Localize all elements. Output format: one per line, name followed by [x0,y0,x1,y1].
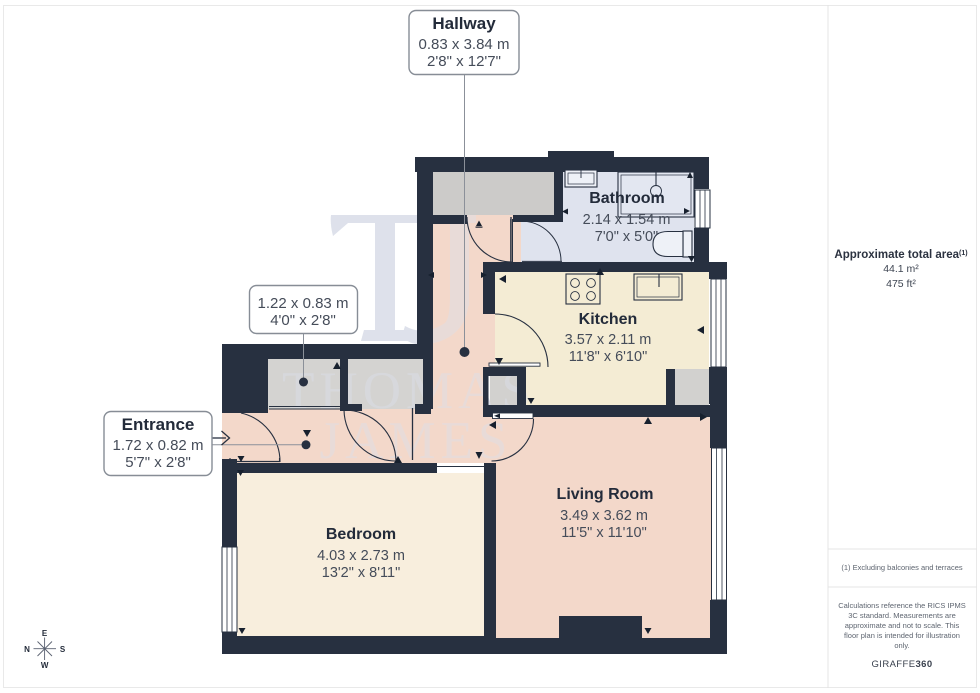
svg-text:11'5" x 11'10": 11'5" x 11'10" [561,525,646,541]
svg-text:13'2" x 8'11": 13'2" x 8'11" [322,565,400,581]
svg-text:E: E [42,629,48,638]
svg-text:5'7" x 2'8": 5'7" x 2'8" [125,454,191,471]
svg-text:S: S [60,645,66,654]
svg-text:approximate and not to scale.: approximate and not to scale. This [845,621,960,630]
svg-text:(1) Excluding balconies and te: (1) Excluding balconies and terraces [841,563,963,572]
svg-text:only.: only. [894,641,909,650]
svg-text:2'8" x 12'7": 2'8" x 12'7" [427,53,501,70]
svg-text:3.57 x 2.11 m: 3.57 x 2.11 m [565,332,652,348]
svg-text:4.03 x 2.73 m: 4.03 x 2.73 m [317,548,405,564]
svg-text:Living Room: Living Room [557,486,654,503]
svg-text:4'0" x 2'8": 4'0" x 2'8" [270,312,336,329]
svg-text:N: N [24,645,30,654]
svg-text:3C standard. Measurements are: 3C standard. Measurements are [848,611,956,620]
svg-text:11'8" x 6'10": 11'8" x 6'10" [569,349,647,365]
svg-text:W: W [41,661,49,670]
svg-text:2.14 x 1.54 m: 2.14 x 1.54 m [583,212,671,228]
svg-text:Bathroom: Bathroom [589,190,665,207]
svg-text:44.1 m²: 44.1 m² [883,263,919,275]
svg-text:Hallway: Hallway [432,14,496,33]
svg-text:1.72 x 0.82 m: 1.72 x 0.82 m [113,437,204,454]
svg-text:floor plan is intended for ill: floor plan is intended for illustration [844,631,960,640]
svg-text:3.49 x 3.62 m: 3.49 x 3.62 m [560,508,648,524]
svg-text:Calculations reference the RIC: Calculations reference the RICS IPMS [838,601,966,610]
svg-text:Approximate total area(1): Approximate total area(1) [834,249,967,261]
svg-text:475 ft²: 475 ft² [886,278,916,290]
svg-text:Entrance: Entrance [122,415,195,434]
svg-text:GIRAFFE360: GIRAFFE360 [871,659,932,670]
svg-text:7'0" x 5'0": 7'0" x 5'0" [595,229,658,245]
svg-text:0.83 x 3.84 m: 0.83 x 3.84 m [419,36,510,53]
svg-text:Bedroom: Bedroom [326,526,396,543]
svg-text:Kitchen: Kitchen [579,311,638,328]
svg-text:1.22 x 0.83 m: 1.22 x 0.83 m [258,295,349,312]
